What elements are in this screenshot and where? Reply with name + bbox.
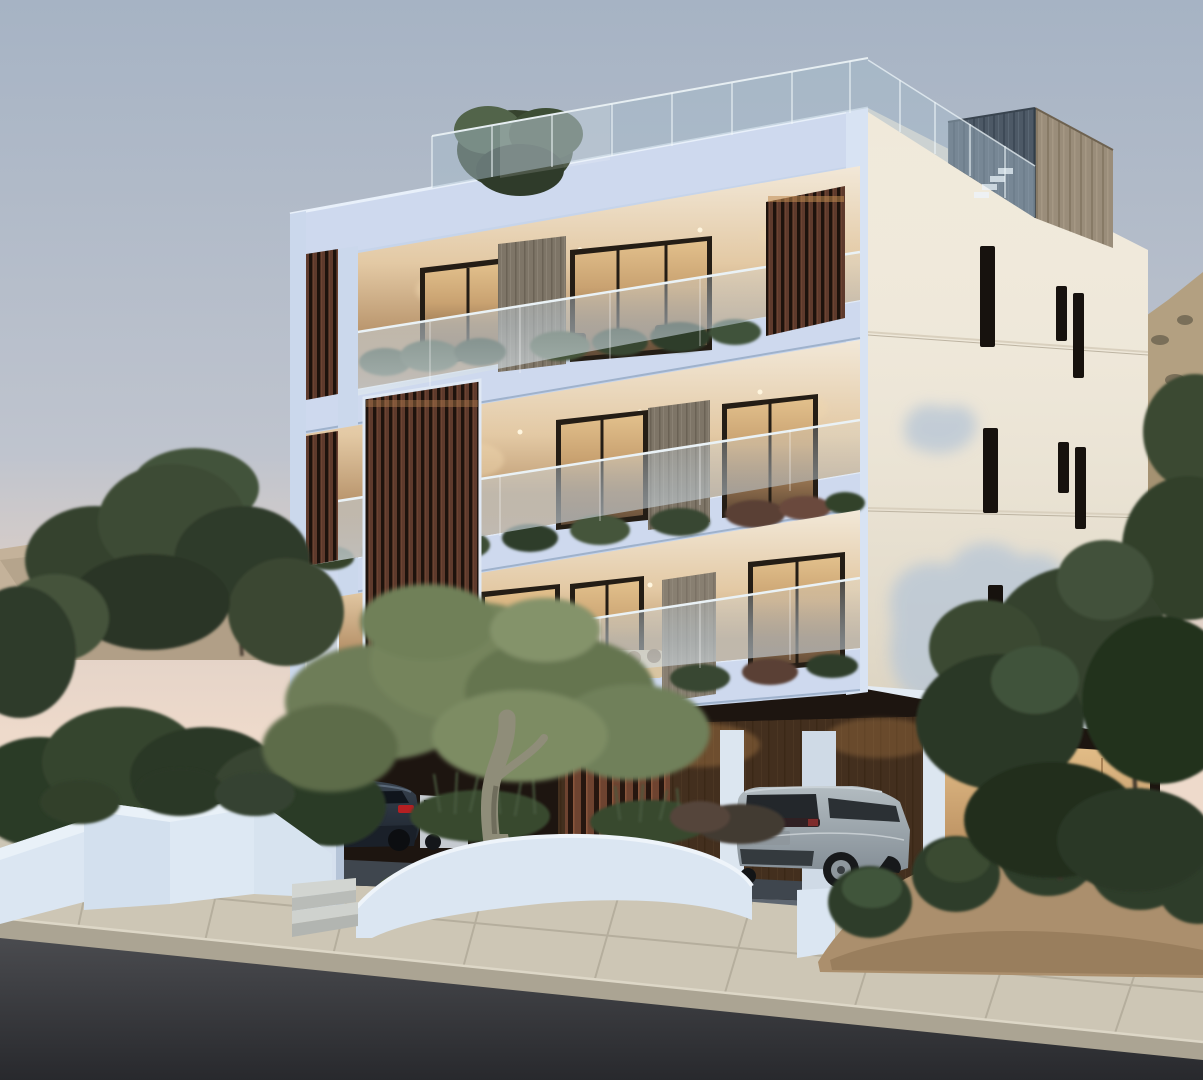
slat-screen-left-bay [306,249,338,400]
slat-screen-top-right [766,186,845,336]
render-canvas [0,0,1203,1080]
architectural-render [0,0,1203,1080]
slat-screen-left-bay [306,431,338,566]
